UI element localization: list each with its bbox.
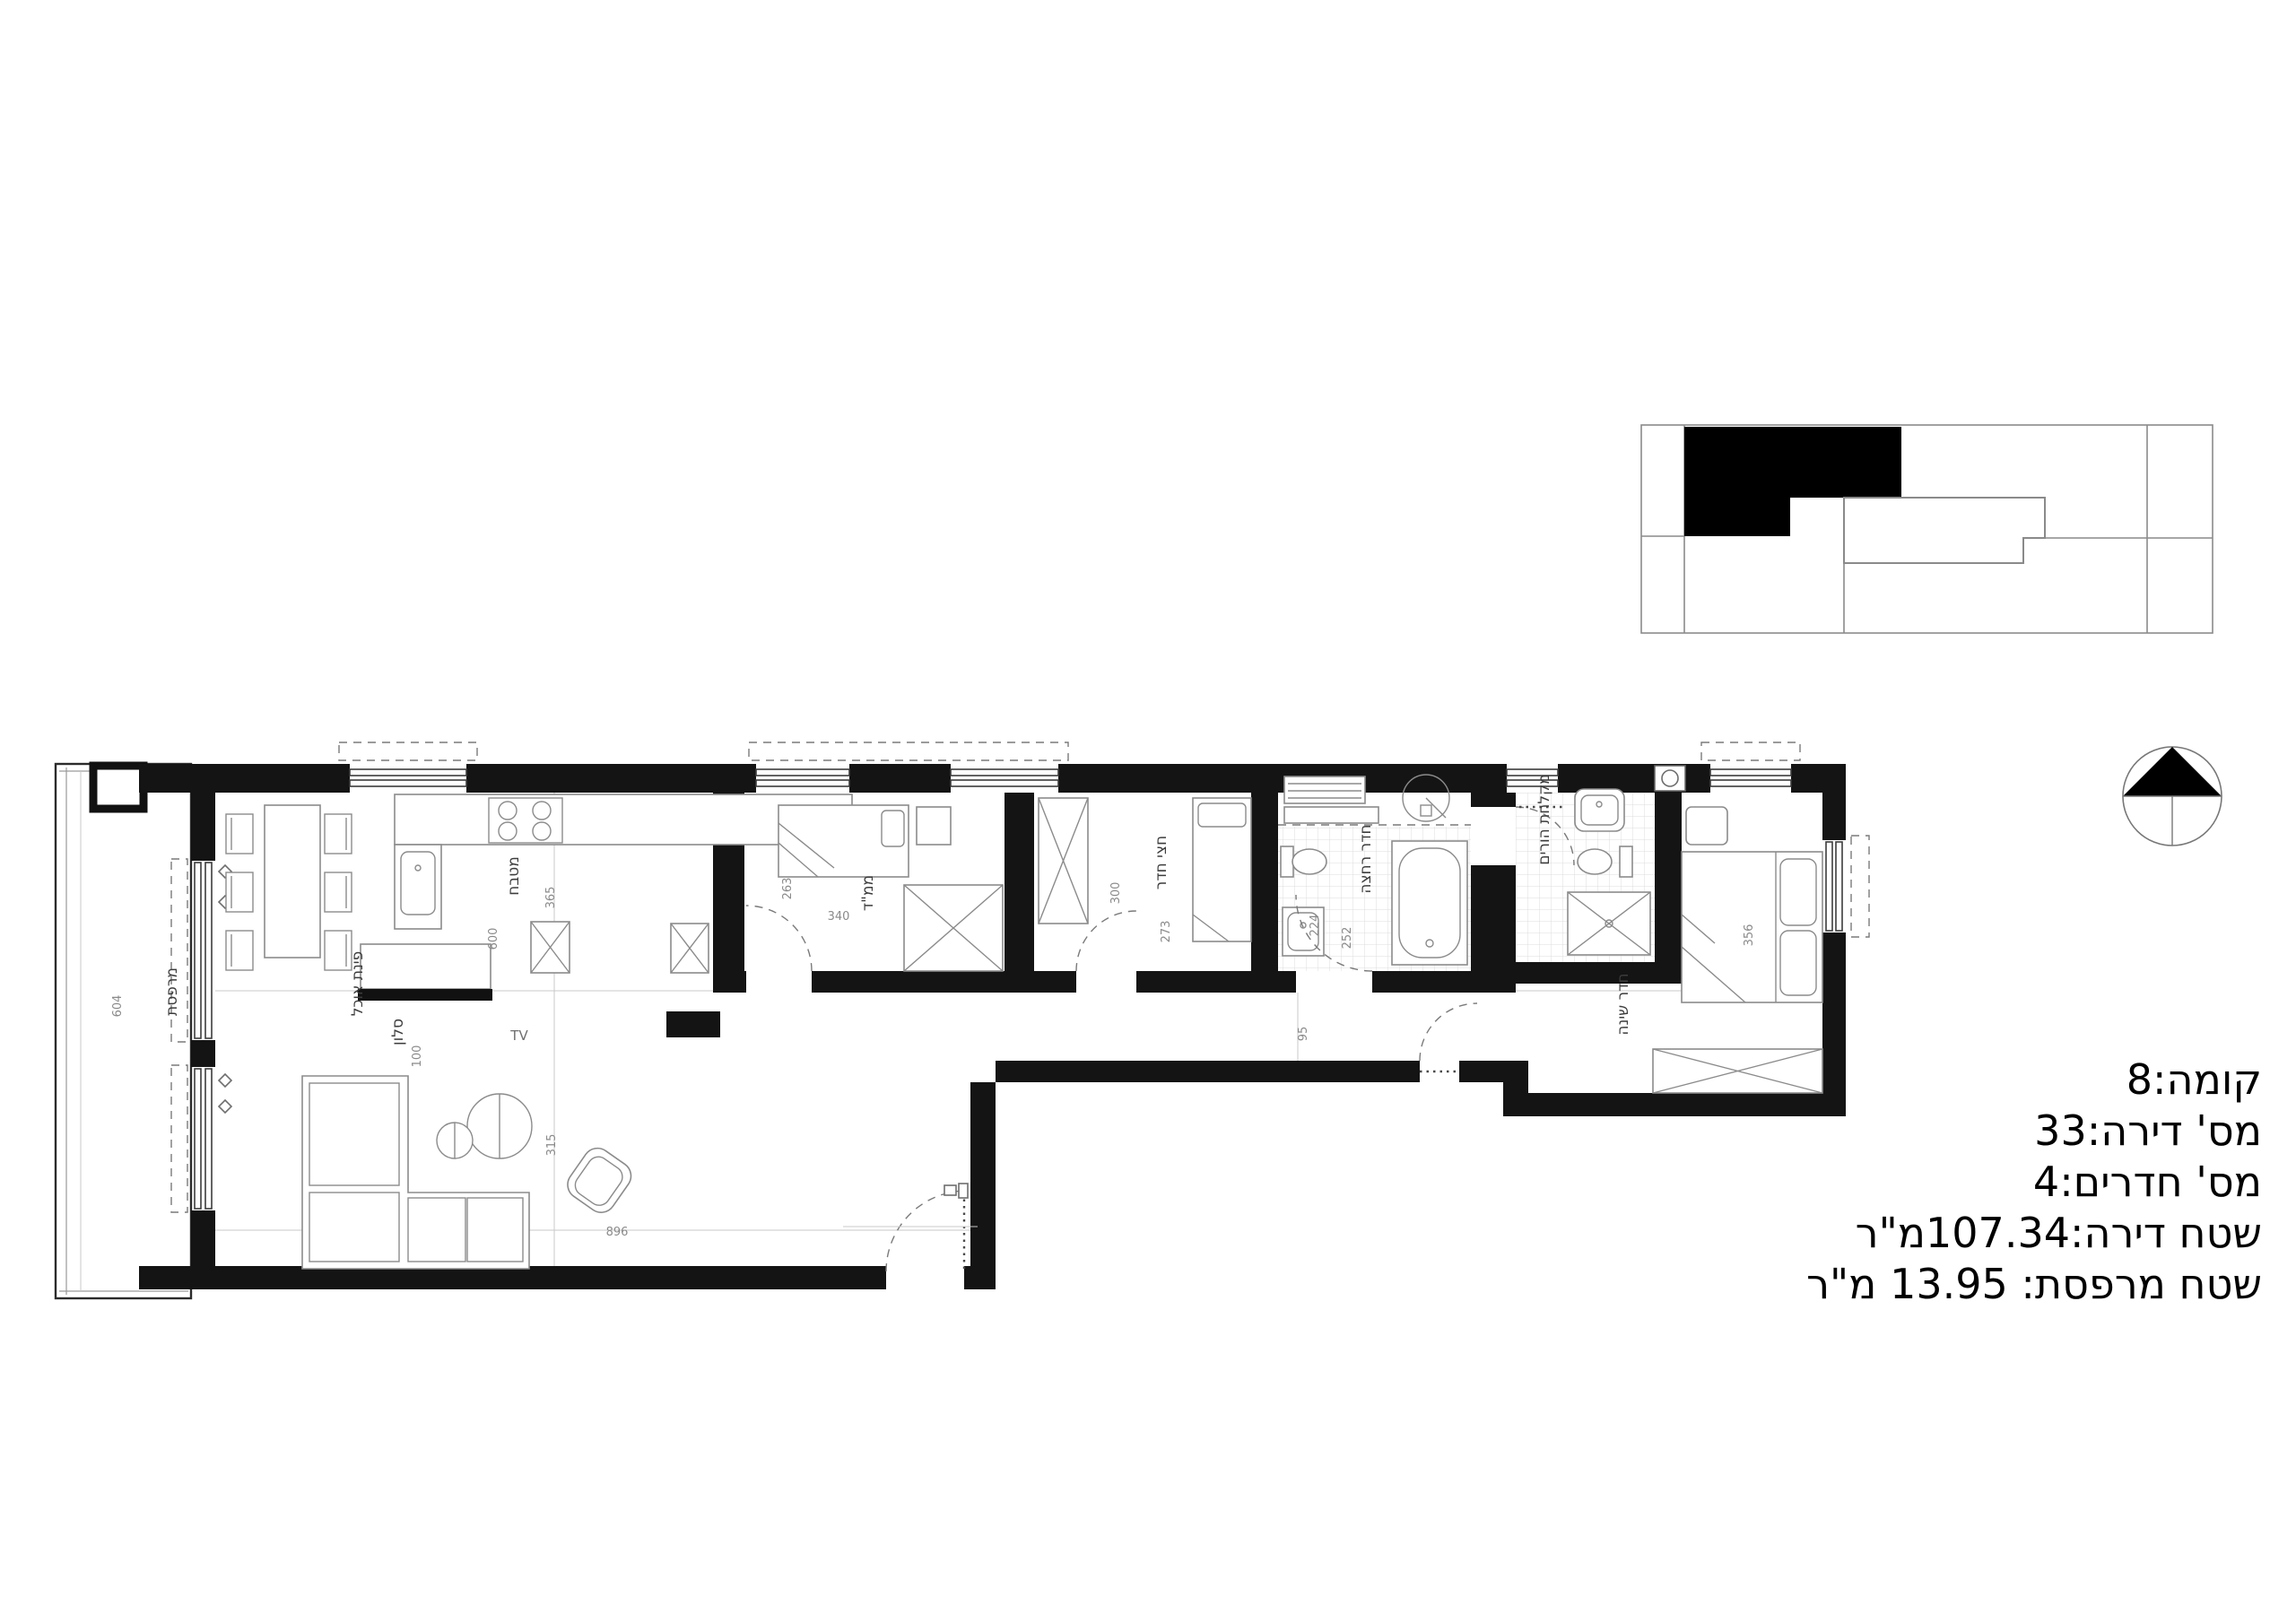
tv-screen — [358, 989, 492, 1001]
dimension: 365 — [544, 887, 558, 909]
room-label-living: סלון — [389, 1019, 407, 1045]
dining-table — [265, 805, 320, 958]
bed — [1193, 798, 1251, 941]
info-floor: קומה:8 — [1806, 1054, 2262, 1106]
dimension: 263 — [781, 878, 795, 900]
dimension: 100 — [411, 1045, 424, 1068]
dimension: 896 — [606, 1226, 629, 1239]
dimension: 273 — [1160, 921, 1173, 943]
closet — [904, 885, 1003, 971]
bed — [778, 805, 909, 877]
room-label-kitchen: מטבח — [505, 856, 523, 896]
room-label-half-room: חצי חדר — [1152, 836, 1170, 889]
armchair — [562, 1142, 637, 1218]
toilet-icon — [1578, 846, 1632, 877]
window — [339, 742, 477, 786]
apartment-info-block: קומה:8 מס' דירה:33 מס' חדרים:4 שטח דירה:… — [1806, 1054, 2262, 1310]
coffee-tables — [437, 1094, 532, 1158]
dimension: 600 — [487, 928, 500, 950]
dimension: 356 — [1743, 924, 1756, 947]
north-arrow-icon — [2123, 747, 2222, 846]
key-plan — [1641, 425, 2213, 633]
room-label-safe-room: ממ"ד — [859, 875, 877, 911]
dining-area — [226, 805, 352, 970]
room-label-bathroom: חדר רחצה — [1357, 824, 1375, 893]
closet — [1039, 798, 1088, 924]
info-apartment-area: שטח דירה:107.34מ"ר — [1806, 1208, 2262, 1259]
dimension: 340 — [828, 910, 850, 924]
cabinet — [531, 922, 570, 973]
dimension: 604 — [111, 995, 125, 1018]
dimension: 252 — [1341, 927, 1354, 950]
room-label-balcony: מרפסת — [163, 967, 181, 1016]
dimension: 95 — [1297, 1027, 1310, 1042]
toilet-icon — [1281, 846, 1326, 877]
dimension: 315 — [545, 1134, 559, 1157]
entry-door-swing — [886, 1191, 967, 1271]
washer-dryer — [1284, 776, 1378, 823]
fixture-label: TV — [509, 1028, 528, 1044]
key-plan-unit-outline — [1844, 498, 2045, 563]
floor-plan-sheet: מרפסתפינת אוכלמטבחסלוןממ"דחצי חדרחדר רחצ… — [0, 0, 2296, 1622]
floor-plan-drawing: מרפסתפינת אוכלמטבחסלוןממ"דחצי חדרחדר רחצ… — [0, 0, 2296, 1622]
dimension: 300 — [1109, 882, 1123, 905]
room-label-parents-shower: מקלחת הורים — [1535, 774, 1553, 864]
shower-icon — [1568, 892, 1650, 955]
bathtub-icon — [1392, 841, 1467, 965]
wall-vent — [1655, 766, 1685, 791]
closet — [1653, 1049, 1822, 1093]
room-label-master-bedroom: חדר שינה — [1614, 973, 1632, 1035]
fixture-labels: TV — [509, 1028, 528, 1044]
room-label-dining: פינת אוכל — [349, 951, 367, 1016]
half-room — [1039, 798, 1251, 971]
window — [756, 769, 849, 786]
entrance — [843, 1184, 978, 1271]
dimension: 224 — [1309, 915, 1322, 937]
door-swing — [1420, 1003, 1477, 1061]
balcony — [56, 764, 191, 1298]
info-balcony-area: שטח מרפסת: 13.95 מ"ר — [1806, 1259, 2262, 1310]
door-swing — [746, 906, 812, 971]
nightstand — [1686, 807, 1727, 845]
window — [1701, 742, 1800, 786]
column — [93, 766, 143, 809]
info-apartment-number: מס' דירה:33 — [1806, 1106, 2262, 1157]
window — [1826, 836, 1869, 937]
nightstand — [917, 807, 951, 845]
info-rooms-count: מס' חדרים:4 — [1806, 1157, 2262, 1208]
tv-cabinet — [361, 944, 491, 989]
door-hardware — [944, 1184, 968, 1198]
sink-icon — [1575, 789, 1624, 831]
cabinet — [671, 924, 709, 973]
